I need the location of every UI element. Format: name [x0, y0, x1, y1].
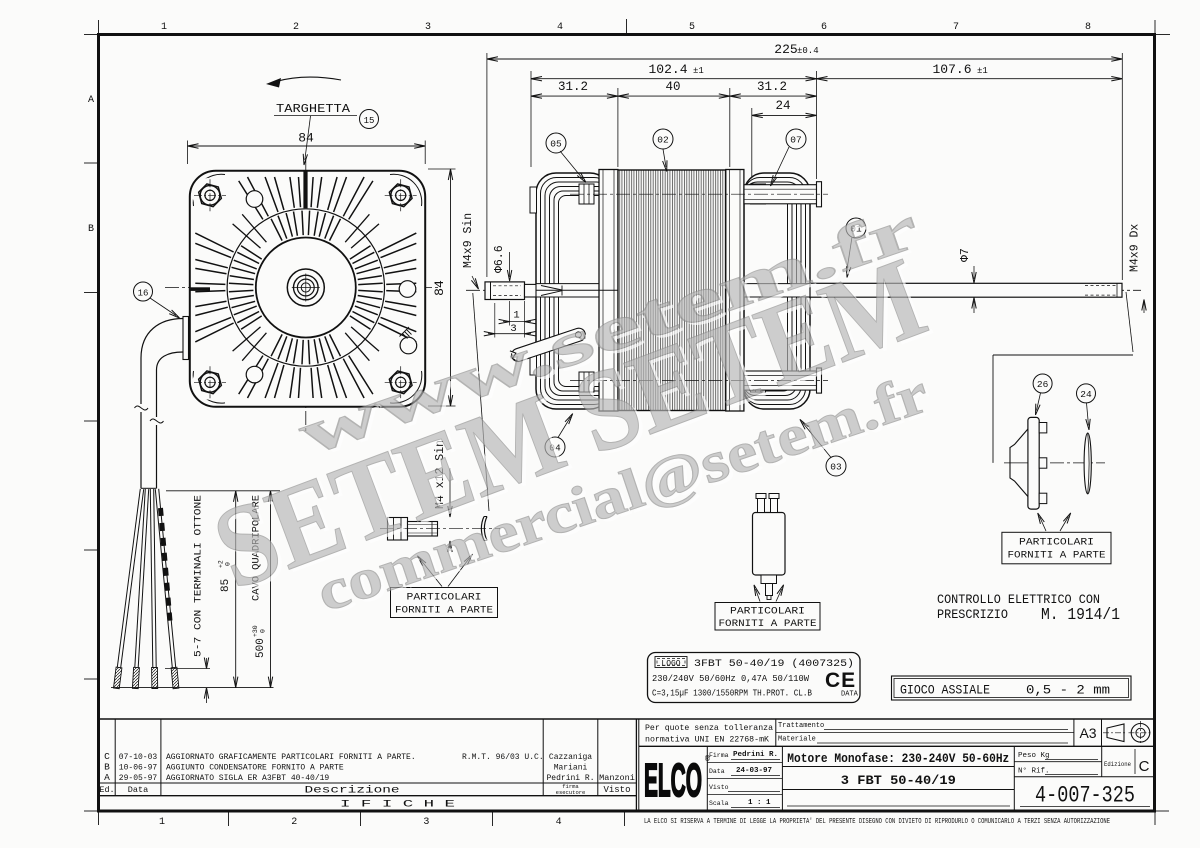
svg-text:Peso Kg: Peso Kg	[1018, 752, 1050, 760]
svg-text:Firma: Firma	[709, 752, 729, 759]
svg-text:Pedrini R.: Pedrini R.	[546, 774, 594, 783]
svg-text:31.2: 31.2	[757, 80, 787, 94]
svg-text:N° Rif.: N° Rif.	[1018, 767, 1050, 776]
svg-text:07: 07	[790, 135, 801, 146]
svg-text:31.2: 31.2	[558, 80, 588, 94]
svg-text:Φ6.6: Φ6.6	[493, 245, 506, 273]
svg-text:500: 500	[255, 638, 267, 658]
svg-text:M4x9 Sin: M4x9 Sin	[462, 213, 475, 268]
svg-text:C=3,15µF 1300/1550RPM TH.PRO: C=3,15µF 1300/1550RPM TH.PROT. CL.B	[652, 689, 813, 699]
svg-text:LA ELCO SI RISERVA A TERMINE D: LA ELCO SI RISERVA A TERMINE DI LEGGE LA…	[644, 818, 1110, 826]
svg-text:Visto: Visto	[709, 784, 729, 791]
svg-text:15: 15	[364, 116, 375, 126]
svg-text:AGGIUNTO CONDENSATORE FORNITO: AGGIUNTO CONDENSATORE FORNITO A PARTE	[166, 764, 344, 773]
svg-text:1 : 1: 1 : 1	[748, 799, 771, 807]
svg-text:4: 4	[557, 22, 563, 33]
svg-text:84: 84	[298, 131, 314, 146]
svg-text:10-06-97: 10-06-97	[119, 764, 158, 773]
svg-text:R.M.T. 96/03 U.C.: R.M.T. 96/03 U.C.	[462, 753, 544, 762]
svg-text:7: 7	[953, 22, 959, 33]
svg-text:M. 1914/1: M. 1914/1	[1041, 606, 1120, 625]
svg-text:3 FBT 50-40/19: 3 FBT 50-40/19	[841, 773, 956, 788]
svg-text:Scala: Scala	[709, 800, 729, 807]
svg-text:±1: ±1	[693, 66, 704, 76]
svg-text:Φ7: Φ7	[959, 248, 972, 262]
svg-text:24: 24	[1080, 389, 1092, 400]
svg-text:DATA: DATA	[841, 691, 859, 699]
svg-text:29-05-97: 29-05-97	[119, 774, 158, 783]
svg-text:3: 3	[425, 22, 431, 33]
svg-text:4-007-325: 4-007-325	[1035, 783, 1135, 809]
svg-text:24: 24	[775, 99, 790, 113]
svg-text:FORNITI A PARTE: FORNITI A PARTE	[1008, 550, 1106, 562]
svg-text:±1: ±1	[977, 66, 988, 76]
svg-text:40: 40	[665, 80, 680, 94]
svg-text:1: 1	[513, 310, 519, 322]
svg-text:Trattamento: Trattamento	[778, 722, 824, 730]
svg-text:Visto: Visto	[603, 785, 630, 795]
svg-text:Cazzaniga: Cazzaniga	[549, 753, 592, 762]
svg-text:FORNITI A PARTE: FORNITI A PARTE	[395, 605, 493, 617]
svg-text:Data: Data	[128, 785, 148, 795]
svg-text:CONTROLLO ELETTRICO CON: CONTROLLO ELETTRICO CON	[937, 592, 1100, 607]
svg-text:TARGHETTA: TARGHETTA	[276, 102, 351, 116]
svg-text:24-03-97: 24-03-97	[736, 767, 772, 775]
svg-text:PARTICOLARI: PARTICOLARI	[1019, 537, 1094, 549]
svg-text:+30: +30	[252, 625, 259, 637]
svg-text:16: 16	[138, 289, 149, 299]
svg-text:CE: CE	[825, 669, 856, 692]
svg-text:2: 2	[291, 817, 297, 828]
svg-text:1: 1	[159, 817, 165, 828]
svg-text:26: 26	[1037, 379, 1049, 390]
svg-text:05: 05	[550, 139, 562, 150]
svg-text:A: A	[104, 772, 110, 783]
svg-text:2: 2	[293, 22, 299, 33]
svg-text:1: 1	[161, 22, 167, 33]
svg-text:Descrizione: Descrizione	[305, 785, 400, 797]
svg-text:107.6: 107.6	[932, 62, 971, 77]
svg-text:I F I C H E: I F I C H E	[340, 800, 455, 811]
svg-text:6: 6	[821, 22, 827, 33]
svg-text:C: C	[104, 751, 110, 762]
svg-text:B: B	[88, 224, 94, 235]
svg-text:4: 4	[556, 817, 562, 828]
svg-text:Per quote senza tolleranza: Per quote senza tolleranza	[645, 723, 773, 733]
svg-text:C: C	[1139, 758, 1150, 775]
svg-text:A: A	[88, 95, 94, 106]
svg-text:FORNITI A PARTE: FORNITI A PARTE	[719, 618, 817, 630]
svg-text:02: 02	[657, 135, 669, 146]
svg-text:Mariani: Mariani	[554, 764, 588, 773]
svg-text:Manzoni: Manzoni	[599, 773, 635, 783]
svg-text:AGGIORNATO GRAFICAMENTE PARTIC: AGGIORNATO GRAFICAMENTE PARTICOLARI FORN…	[166, 753, 416, 762]
svg-text:230/240V 50/60Hz 0,47A 50/: 230/240V 50/60Hz 0,47A 50/110W	[652, 673, 809, 684]
svg-text:M4x9 Dx: M4x9 Dx	[1129, 224, 1142, 272]
svg-text:normativa UNI EN 22768-mK: normativa UNI EN 22768-mK	[645, 735, 770, 745]
svg-text:Ed.: Ed.	[99, 785, 114, 795]
svg-text:PARTICOLARI: PARTICOLARI	[730, 606, 805, 618]
svg-text:esecutore: esecutore	[556, 789, 586, 796]
svg-text:Edizione: Edizione	[1104, 761, 1131, 768]
svg-text:225: 225	[774, 42, 797, 57]
svg-text:8: 8	[1085, 22, 1091, 33]
svg-text:A3: A3	[1079, 725, 1096, 741]
svg-text:03: 03	[830, 462, 842, 473]
svg-text:ELCO: ELCO	[644, 754, 702, 806]
svg-text:Motore Monofase: 230-240V 50-6: Motore Monofase: 230-240V 50-60Hz	[787, 751, 1009, 766]
svg-text:LOGO: LOGO	[661, 660, 680, 669]
svg-text:AGGIORNATO SIGLA ER A3FBT 40-4: AGGIORNATO SIGLA ER A3FBT 40-40/19	[166, 774, 329, 783]
svg-text:PRESCRIZIO: PRESCRIZIO	[937, 607, 1008, 622]
svg-text:5: 5	[689, 22, 695, 33]
svg-text:B: B	[104, 762, 110, 773]
svg-text:GIOCO ASSIALE: GIOCO ASSIALE	[900, 684, 990, 698]
svg-text:07-10-03: 07-10-03	[119, 753, 158, 762]
svg-text:0,5 - 2 mm: 0,5 - 2 mm	[1026, 684, 1110, 698]
svg-text:84: 84	[432, 280, 447, 296]
svg-text:5-7 CON TERMINALI OTTONE: 5-7 CON TERMINALI OTTONE	[193, 495, 205, 657]
svg-text:Pedrini R.: Pedrini R.	[733, 751, 778, 759]
svg-text:±0.4: ±0.4	[797, 46, 819, 56]
svg-text:Data: Data	[709, 768, 725, 775]
svg-text:Materiale: Materiale	[778, 736, 816, 744]
svg-text:0: 0	[260, 629, 267, 633]
svg-text:102.4: 102.4	[648, 62, 687, 77]
svg-text:3: 3	[423, 817, 429, 828]
